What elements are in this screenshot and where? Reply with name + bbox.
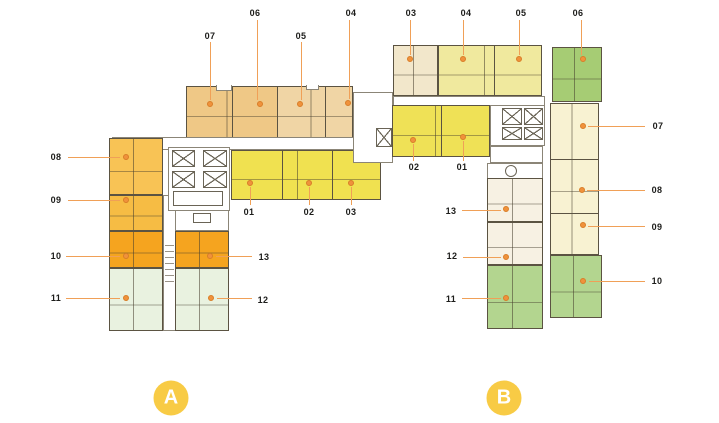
callout-label-b-05: 05 [516, 8, 527, 18]
leader-line [463, 20, 464, 55]
callout-label-b-09: 09 [652, 222, 663, 232]
leader-line [589, 281, 645, 282]
callout-dot [410, 137, 416, 143]
leader-line [410, 20, 411, 55]
callout-label-b-04: 04 [461, 8, 472, 18]
leader-line [588, 126, 645, 127]
callout-label-b-10: 10 [652, 276, 663, 286]
leader-line [587, 190, 645, 191]
callout-label-b-12: 12 [447, 251, 458, 261]
callout-label-b-03: 03 [406, 8, 417, 18]
callout-label-b-02: 02 [409, 162, 420, 172]
callout-dot [580, 123, 586, 129]
callout-label-b-06: 06 [573, 8, 584, 18]
callout-dot [580, 222, 586, 228]
leader-line [519, 20, 520, 55]
callout-dot [580, 278, 586, 284]
leader-line [463, 257, 501, 258]
callout-dot [580, 56, 586, 62]
callout-label-b-07: 07 [653, 121, 664, 131]
leader-line [462, 210, 501, 211]
floor-plan-canvas: 07 06 05 04 08 09 10 11 01 02 03 13 12 [0, 0, 719, 423]
leader-line [462, 298, 501, 299]
callout-label-b-08: 08 [652, 185, 663, 195]
callout-dot [579, 187, 585, 193]
callout-dot [503, 295, 509, 301]
callout-dot [503, 254, 509, 260]
callout-label-b-01: 01 [457, 162, 468, 172]
callouts-b: 03 04 05 06 02 01 13 12 11 07 08 09 10 [0, 0, 719, 423]
building-b-badge: B [487, 381, 522, 416]
leader-line [588, 226, 645, 227]
callout-dot [516, 56, 522, 62]
callout-dot [460, 134, 466, 140]
leader-line [581, 20, 582, 55]
callout-label-b-13: 13 [446, 206, 457, 216]
callout-dot [407, 56, 413, 62]
callout-label-b-11: 11 [446, 294, 456, 304]
callout-dot [460, 56, 466, 62]
leader-line [413, 144, 414, 161]
leader-line [463, 141, 464, 161]
callout-dot [503, 206, 509, 212]
building-a-badge: A [154, 381, 189, 416]
